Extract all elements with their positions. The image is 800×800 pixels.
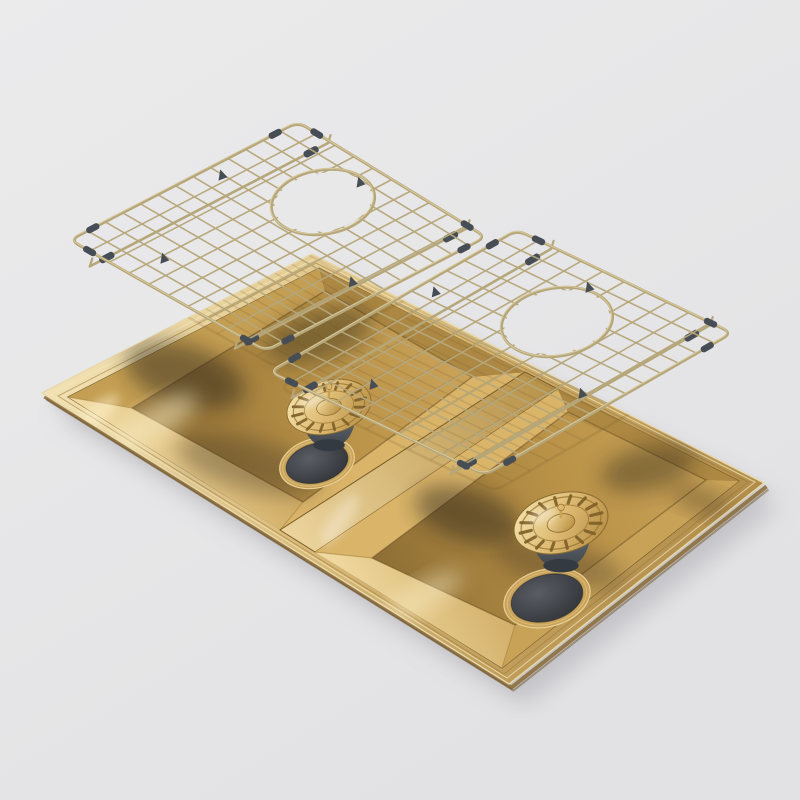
- strainer-slot: [566, 541, 568, 548]
- strainer-cup-base: [313, 439, 345, 451]
- sink-render: [0, 0, 800, 800]
- strainer-cup-base: [543, 559, 578, 573]
- strainer-pin-ball: [558, 504, 565, 511]
- strainer-slot: [555, 498, 557, 505]
- product-image: Exploded 3D render of a brushed brass go…: [0, 0, 800, 800]
- strainer-slot: [333, 423, 335, 429]
